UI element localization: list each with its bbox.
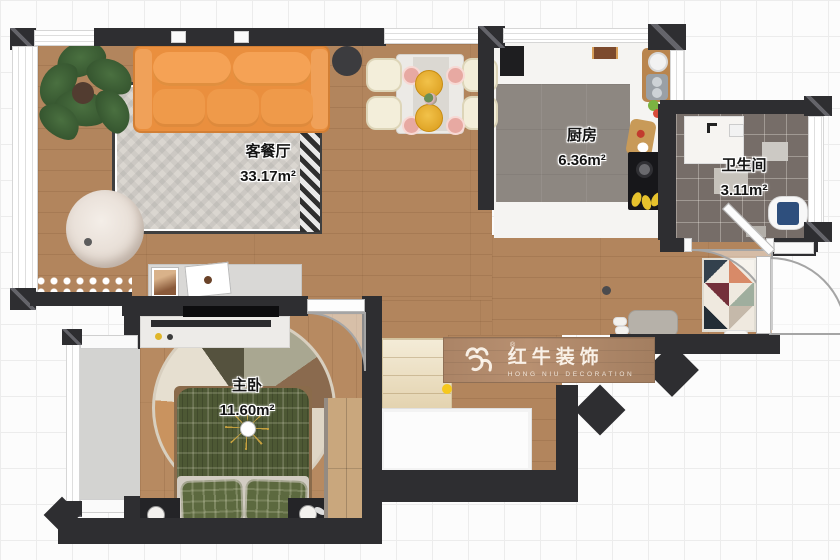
plate [446,116,465,135]
ceiling-light [240,421,256,437]
sink-basin [652,88,662,98]
watermark-text: 红牛装饰 HONG NIU DECORATION [508,342,635,378]
wall-chamfer [575,385,626,436]
room-area: 11.60m² [192,403,302,420]
sofa-seat-cushion [207,89,259,127]
floor-plan-canvas: ® 红牛装饰 HONG NIU DECORATION 客餐厅 33.17m² 厨… [0,0,840,560]
room-name: 客餐厅 [200,144,336,161]
living-floor-extension [372,300,492,340]
potted-plant [28,38,138,150]
bean-bag-chair [66,190,144,268]
table-flowers [424,93,437,105]
cabinet-handle-dot [442,384,452,394]
room-name: 卫生间 [688,158,800,175]
window-above-kitchen [503,28,649,43]
room-label-living-dining: 客餐厅 33.17m² [200,144,336,185]
entry-door-arc [770,258,840,334]
wall-niche [234,31,249,43]
wardrobe [324,398,364,532]
floor-dot-decor [602,286,611,295]
pan [639,164,650,175]
toilet-lid [777,202,799,225]
wall-foyer-right [556,385,578,475]
tomato [636,129,645,138]
wall-kitchen-bathroom [658,104,676,240]
bean-bag-button [84,238,92,246]
kitchen-sink [646,74,668,100]
sink-basin [652,77,662,87]
console-decor [167,334,173,340]
side-table [332,46,362,76]
room-area: 3.11m² [688,183,800,200]
room-label-bathroom: 卫生间 3.11m² [688,158,800,199]
dining-chair [366,96,402,130]
dining-chair [366,58,402,92]
wall-foyer-bottom [372,470,578,502]
registered-mark: ® [510,342,515,349]
entry-bench [628,310,678,337]
room-label-kitchen: 厨房 6.36m² [527,128,637,169]
window-above-dining [384,28,480,44]
bay-window-bar [80,335,138,349]
shoe-cabinet [382,338,452,412]
wall-art [152,268,178,297]
window-top-left [34,30,96,46]
utility-cabinet [380,408,532,472]
sofa-seat-cushion [261,89,313,127]
watermark-subtitle: HONG NIU DECORATION [508,371,635,378]
watermark-brand: 红牛装饰 [508,342,635,369]
frame-dot [204,276,213,285]
bedroom-door [307,299,365,312]
bathroom-shelf [729,124,744,137]
watermark-band: ® 红牛装饰 HONG NIU DECORATION [443,337,655,383]
console-decor [155,333,162,340]
wall-niche [171,31,186,43]
entry-sill [774,242,814,254]
spice-box [592,47,618,59]
room-area: 6.36m² [527,153,637,170]
wall-bathroom-top [660,100,814,114]
toilet [768,196,808,230]
sofa [133,45,330,133]
bathroom-door-jamb [684,238,692,252]
entry-door [756,256,771,334]
wall-corner [804,96,832,116]
sofa-arm-right [311,49,328,129]
wall-living-bottom-left [30,292,132,306]
entry-geometric-rug [702,258,756,332]
sofa-back-cushion [233,52,311,86]
wall-corner [648,24,686,50]
sink-plate [648,52,668,72]
refrigerator [500,46,524,76]
picture-frame [184,262,231,298]
pendant-lamp [415,104,443,132]
sofa-seat-cushion [153,89,205,127]
sofa-back-cushion [153,52,231,86]
bay-window-frame [66,333,80,515]
room-name: 厨房 [527,128,637,145]
room-area: 33.17m² [200,169,336,186]
living-tv [183,306,279,317]
wardrobe-divider [346,398,347,532]
wall-bedroom-bottom [58,518,380,544]
bedroom-tv [151,320,271,327]
wall-living-kitchen [478,44,494,210]
window-living-left [12,46,38,292]
room-name: 主卧 [192,378,302,395]
bay-window-sill-panel [80,349,140,499]
slippers [613,317,627,326]
wardrobe-shelf [328,468,364,469]
shower-head [707,123,710,133]
window-kitchen-right [670,50,685,104]
bedroom-console [140,316,290,348]
wall-bedroom-right [362,296,382,544]
wall-corner [62,329,82,345]
plate [446,66,465,85]
plant-pot [72,82,94,104]
bull-logo-icon [464,345,500,375]
room-label-bedroom: 主卧 11.60m² [192,378,302,419]
window-bathroom-right [808,116,824,224]
